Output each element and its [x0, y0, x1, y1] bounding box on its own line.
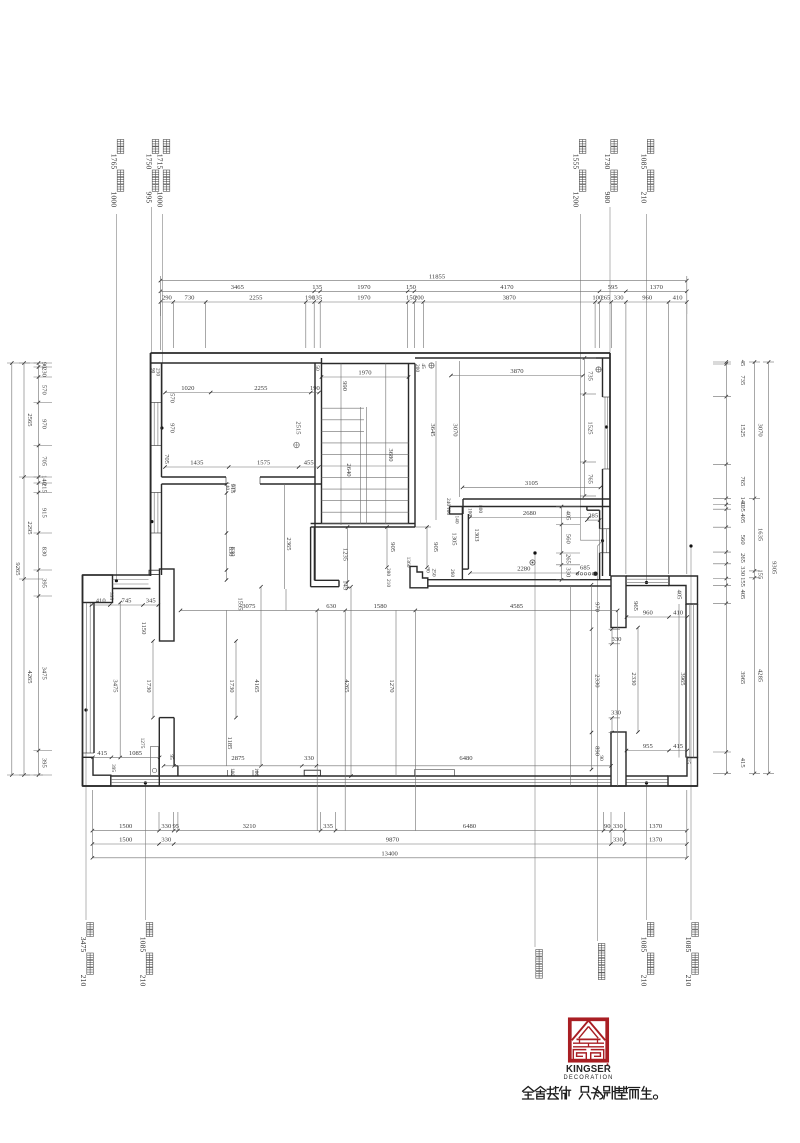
- svg-text:765: 765: [587, 474, 594, 485]
- svg-text:1185: 1185: [226, 737, 233, 751]
- svg-text:330: 330: [161, 823, 172, 830]
- svg-text:2330: 2330: [594, 674, 601, 688]
- svg-text:830: 830: [41, 547, 48, 558]
- svg-text:1970: 1970: [357, 295, 371, 302]
- svg-text:395: 395: [108, 592, 114, 600]
- svg-text:1500: 1500: [119, 823, 133, 830]
- svg-text:405: 405: [676, 590, 683, 601]
- svg-text:335: 335: [323, 823, 334, 830]
- svg-text:150: 150: [406, 284, 417, 291]
- svg-text:415: 415: [673, 743, 684, 750]
- svg-text:3070: 3070: [757, 424, 764, 438]
- svg-text:2330: 2330: [630, 672, 637, 686]
- svg-text:4285: 4285: [757, 669, 764, 683]
- svg-text:3465: 3465: [231, 284, 245, 291]
- svg-text:1275: 1275: [139, 738, 145, 749]
- svg-text:9870: 9870: [386, 837, 400, 844]
- svg-text:3870: 3870: [503, 295, 517, 302]
- svg-text:145: 145: [341, 580, 348, 591]
- svg-text:1715: 1715: [155, 154, 164, 170]
- svg-text:595: 595: [608, 284, 619, 291]
- svg-text:330: 330: [161, 837, 172, 844]
- svg-text:395: 395: [41, 758, 48, 769]
- svg-text:190: 190: [310, 385, 321, 392]
- svg-text:330: 330: [565, 567, 572, 578]
- svg-text:2640: 2640: [345, 463, 352, 477]
- svg-text:960: 960: [642, 295, 653, 302]
- svg-text:1730: 1730: [228, 679, 235, 693]
- svg-text:2680: 2680: [523, 510, 537, 517]
- svg-text:395: 395: [41, 578, 48, 589]
- svg-text:1580: 1580: [374, 603, 388, 610]
- svg-text:415: 415: [97, 750, 108, 757]
- svg-text:140: 140: [454, 515, 460, 523]
- svg-text:11855: 11855: [429, 273, 446, 280]
- svg-text:970: 970: [41, 419, 48, 430]
- svg-text:995: 995: [144, 192, 153, 204]
- svg-text:6480: 6480: [463, 823, 477, 830]
- svg-text:1970: 1970: [357, 284, 371, 291]
- svg-text:1730: 1730: [603, 154, 612, 170]
- svg-text:2365: 2365: [285, 537, 292, 551]
- svg-text:100: 100: [467, 508, 473, 516]
- svg-text:410: 410: [673, 295, 684, 302]
- svg-text:1970: 1970: [358, 370, 372, 377]
- svg-text:990: 990: [341, 381, 348, 392]
- svg-text:330: 330: [613, 837, 624, 844]
- svg-text:250: 250: [431, 568, 437, 576]
- svg-text:735: 735: [739, 375, 746, 386]
- svg-text:100: 100: [253, 768, 259, 776]
- svg-text:200: 200: [414, 364, 420, 372]
- svg-text:90: 90: [425, 567, 431, 573]
- svg-text:345: 345: [146, 598, 157, 605]
- svg-text:1085: 1085: [138, 937, 147, 953]
- svg-text:765: 765: [739, 476, 746, 487]
- svg-text:330: 330: [611, 710, 622, 717]
- svg-text:1085: 1085: [129, 750, 143, 757]
- svg-text:415: 415: [685, 756, 691, 764]
- svg-text:200: 200: [414, 295, 425, 302]
- svg-text:6480: 6480: [459, 755, 473, 762]
- svg-text:705: 705: [41, 456, 48, 467]
- svg-text:960: 960: [643, 610, 654, 617]
- svg-text:230: 230: [41, 367, 48, 378]
- svg-text:280: 280: [385, 568, 391, 576]
- svg-text:2280: 2280: [517, 566, 531, 573]
- svg-text:155: 155: [739, 577, 746, 588]
- svg-text:980: 980: [603, 192, 612, 204]
- svg-text:260: 260: [449, 569, 455, 577]
- svg-text:905: 905: [432, 542, 439, 553]
- svg-text:215: 215: [41, 483, 48, 494]
- svg-text:905: 905: [389, 542, 396, 553]
- svg-text:410: 410: [673, 610, 684, 617]
- svg-text:1200: 1200: [572, 192, 581, 208]
- svg-text:1235: 1235: [341, 548, 348, 562]
- svg-text:240: 240: [445, 498, 451, 506]
- svg-text:4265: 4265: [343, 679, 350, 693]
- svg-text:330: 330: [739, 566, 746, 577]
- svg-text:1525: 1525: [587, 421, 594, 435]
- svg-text:4585: 4585: [510, 603, 524, 610]
- svg-text:2875: 2875: [231, 755, 245, 762]
- svg-text:90: 90: [604, 823, 611, 830]
- svg-text:3965: 3965: [739, 671, 746, 685]
- svg-text:DECORATION: DECORATION: [564, 1074, 614, 1081]
- svg-text:1750: 1750: [144, 154, 153, 170]
- svg-text:330: 330: [614, 295, 625, 302]
- svg-text:915: 915: [229, 484, 236, 495]
- svg-text:3070: 3070: [452, 423, 459, 437]
- svg-text:830: 830: [227, 547, 234, 558]
- svg-text:570: 570: [41, 385, 48, 396]
- svg-text:290: 290: [162, 295, 173, 302]
- svg-text:1085: 1085: [640, 937, 649, 953]
- svg-text:405: 405: [565, 511, 572, 522]
- svg-text:970: 970: [169, 423, 176, 434]
- svg-text:560: 560: [739, 535, 746, 546]
- svg-text:210: 210: [385, 579, 391, 587]
- svg-text:13400: 13400: [381, 850, 398, 857]
- svg-text:3645: 3645: [429, 423, 436, 437]
- svg-text:210: 210: [640, 192, 649, 204]
- svg-text:1555: 1555: [572, 154, 581, 170]
- svg-text:705: 705: [163, 454, 170, 465]
- svg-text:3965: 3965: [679, 672, 686, 686]
- svg-text:2295: 2295: [26, 521, 33, 535]
- svg-text:50: 50: [314, 365, 320, 371]
- svg-text:285: 285: [588, 513, 599, 520]
- svg-text:1020: 1020: [181, 385, 195, 392]
- svg-text:330: 330: [304, 755, 315, 762]
- svg-text:395: 395: [110, 764, 116, 772]
- svg-text:1595: 1595: [237, 597, 244, 611]
- svg-text:3210: 3210: [243, 823, 257, 830]
- svg-text:3680: 3680: [387, 448, 394, 462]
- svg-text:330: 330: [612, 636, 623, 643]
- svg-text:730: 730: [185, 295, 196, 302]
- svg-text:1085: 1085: [640, 154, 649, 170]
- svg-text:745: 745: [122, 598, 133, 605]
- svg-text:45: 45: [420, 363, 426, 369]
- svg-text:100: 100: [445, 507, 451, 515]
- svg-text:4265: 4265: [26, 670, 33, 684]
- svg-text:1085: 1085: [684, 937, 693, 953]
- svg-text:965: 965: [632, 601, 639, 612]
- svg-text:1730: 1730: [145, 679, 152, 693]
- svg-text:890: 890: [594, 746, 601, 757]
- svg-text:415: 415: [739, 758, 746, 769]
- svg-text:1635: 1635: [757, 528, 764, 542]
- svg-text:265: 265: [739, 553, 746, 564]
- svg-text:735: 735: [587, 371, 594, 382]
- svg-text:685: 685: [580, 565, 591, 572]
- svg-text:630: 630: [326, 603, 337, 610]
- svg-text:210: 210: [640, 975, 649, 987]
- svg-text:4170: 4170: [500, 284, 514, 291]
- svg-text:1435: 1435: [190, 460, 204, 467]
- svg-text:1765: 1765: [109, 154, 118, 170]
- svg-text:1525: 1525: [739, 424, 746, 438]
- svg-text:1150: 1150: [140, 622, 147, 636]
- svg-text:1370: 1370: [649, 823, 663, 830]
- svg-text:265: 265: [565, 554, 572, 565]
- svg-text:210: 210: [138, 975, 147, 987]
- svg-text:135: 135: [312, 295, 323, 302]
- svg-text:1370: 1370: [650, 284, 664, 291]
- svg-text:230: 230: [155, 368, 161, 376]
- svg-text:45: 45: [739, 360, 746, 367]
- svg-text:410: 410: [96, 598, 107, 605]
- svg-text:3475: 3475: [41, 667, 48, 681]
- svg-text:1270: 1270: [388, 679, 395, 693]
- svg-text:405: 405: [739, 513, 746, 524]
- svg-text:2255: 2255: [249, 295, 263, 302]
- svg-text:265: 265: [600, 295, 611, 302]
- svg-text:800: 800: [477, 505, 483, 513]
- svg-text:1360: 1360: [405, 557, 411, 568]
- svg-text:3105: 3105: [525, 480, 539, 487]
- svg-text:570: 570: [169, 393, 176, 404]
- svg-text:405: 405: [739, 589, 746, 600]
- svg-text:1000: 1000: [155, 192, 164, 208]
- svg-text:1000: 1000: [109, 192, 118, 208]
- svg-text:9305: 9305: [771, 561, 778, 575]
- svg-text:210: 210: [79, 975, 88, 987]
- svg-text:3870: 3870: [510, 368, 524, 375]
- svg-text:455: 455: [304, 460, 315, 467]
- svg-text:2565: 2565: [26, 413, 33, 427]
- svg-text:135: 135: [312, 284, 323, 291]
- svg-text:4165: 4165: [253, 679, 260, 693]
- svg-text:2255: 2255: [254, 385, 268, 392]
- svg-text:95: 95: [168, 754, 174, 760]
- svg-text:100: 100: [229, 768, 235, 776]
- svg-text:955: 955: [643, 743, 654, 750]
- svg-text:3475: 3475: [79, 937, 88, 953]
- svg-text:560: 560: [565, 534, 572, 545]
- svg-text:2515: 2515: [295, 421, 302, 435]
- svg-text:1370: 1370: [649, 837, 663, 844]
- svg-text:1575: 1575: [257, 460, 271, 467]
- svg-text:330: 330: [613, 823, 624, 830]
- svg-text:105: 105: [739, 502, 746, 513]
- svg-text:915: 915: [41, 508, 48, 519]
- svg-text:970: 970: [594, 602, 601, 613]
- svg-text:1303: 1303: [473, 528, 480, 542]
- svg-text:1305: 1305: [451, 532, 458, 546]
- svg-text:3475: 3475: [112, 679, 119, 693]
- svg-text:90: 90: [598, 755, 604, 761]
- svg-text:210: 210: [684, 975, 693, 987]
- svg-text:9265: 9265: [14, 562, 21, 576]
- svg-text:1500: 1500: [119, 837, 133, 844]
